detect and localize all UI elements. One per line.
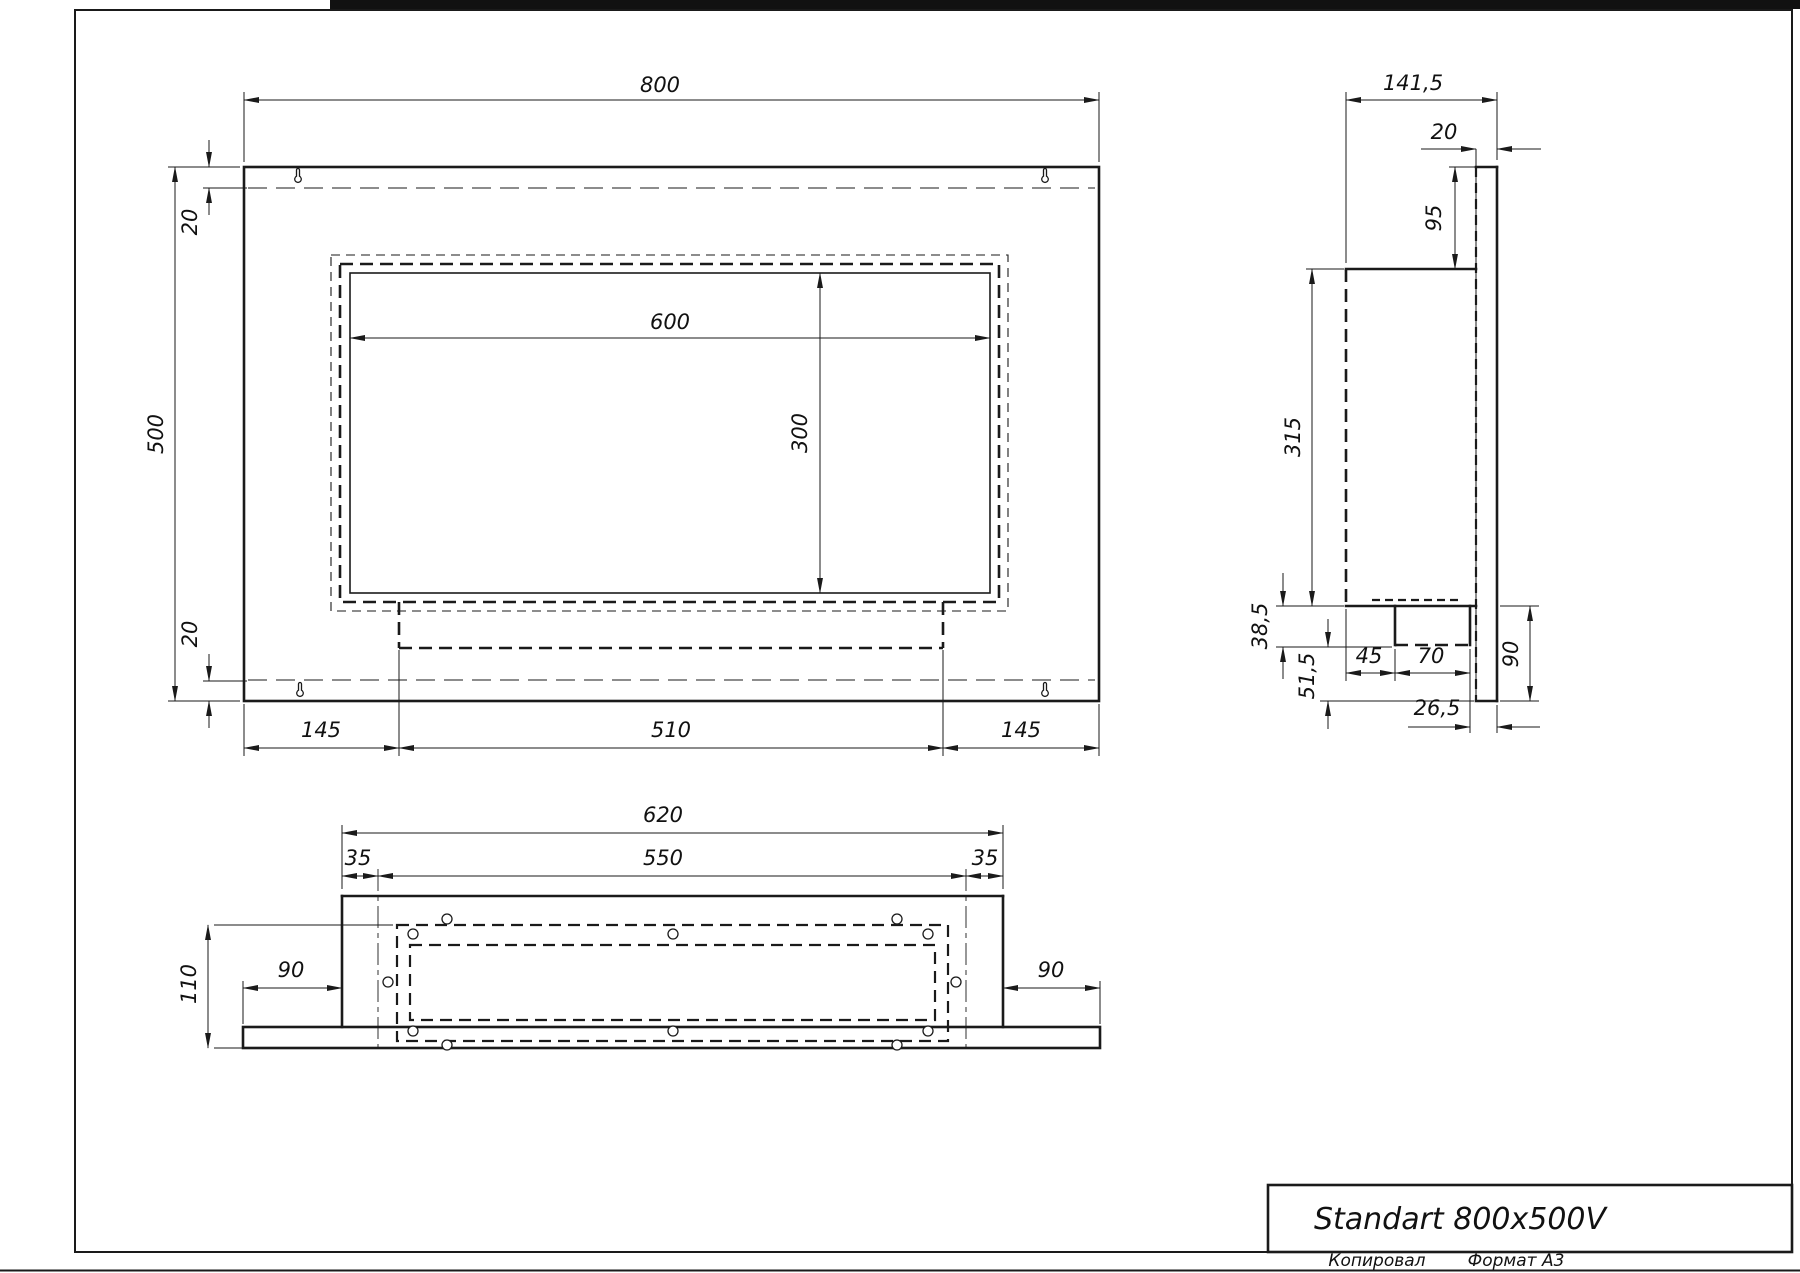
drawing-title: Standart 800x500V xyxy=(1314,1202,1609,1237)
bottom-dimensions: 620 35 550 35 110 90 90 xyxy=(177,803,1100,1048)
side-view: 141,5 20 95 315 38,5 51,5 45 xyxy=(1248,71,1541,733)
dim-label: 550 xyxy=(643,846,683,870)
dim-label: 90 xyxy=(278,958,305,982)
wall-plate xyxy=(1476,167,1497,701)
bottom-view: 620 35 550 35 110 90 90 xyxy=(177,803,1100,1051)
bottom-hidden-frame-inner xyxy=(410,945,935,1020)
dim-label: 600 xyxy=(650,310,690,334)
bottom-hidden-frame-outer xyxy=(397,925,948,1041)
front-view: 800 500 20 20 600 300 145 xyxy=(144,73,1099,756)
dim-label: 95 xyxy=(1422,205,1446,232)
dim-label: 620 xyxy=(643,803,683,827)
front-dimensions: 800 500 20 20 600 300 145 xyxy=(144,73,1099,756)
dim-label: 500 xyxy=(144,414,168,454)
dim-label: 141,5 xyxy=(1383,71,1443,95)
dim-label: 38,5 xyxy=(1248,603,1272,650)
keyhole-mount-icon xyxy=(1042,683,1049,697)
dim-label: 45 xyxy=(1356,644,1383,668)
dim-label: 26,5 xyxy=(1414,696,1461,720)
dim-label: 20 xyxy=(178,621,202,648)
title-block: Standart 800x500V Копировал Формат А3 xyxy=(1268,1185,1792,1271)
dim-label: 800 xyxy=(640,73,680,97)
dim-label: 315 xyxy=(1281,417,1305,457)
dim-label: 90 xyxy=(1499,641,1523,668)
dim-label: 300 xyxy=(788,413,812,453)
keyhole-mount-icon xyxy=(295,169,302,183)
opening-flange-frame xyxy=(331,255,1008,611)
bottom-body xyxy=(342,896,1003,1027)
dim-label: 510 xyxy=(651,718,691,742)
dim-label: 51,5 xyxy=(1295,653,1319,700)
burner-tray-hidden xyxy=(399,602,943,648)
dim-label: 35 xyxy=(345,846,372,870)
dim-label: 145 xyxy=(1001,718,1041,742)
screw-holes xyxy=(383,914,961,1050)
copied-label: Копировал xyxy=(1328,1251,1425,1271)
keyhole-mount-icon xyxy=(297,683,304,697)
format-label: Формат А3 xyxy=(1468,1251,1565,1271)
dim-label: 70 xyxy=(1418,644,1445,668)
dim-label: 35 xyxy=(972,846,999,870)
side-tray xyxy=(1395,606,1470,645)
dim-label: 145 xyxy=(301,718,341,742)
dim-label: 20 xyxy=(178,209,202,236)
scan-edge-bar xyxy=(330,0,1800,9)
dim-label: 90 xyxy=(1038,958,1065,982)
keyhole-mount-icon xyxy=(1042,169,1049,183)
side-body xyxy=(1346,149,1476,701)
drawing-sheet: 800 500 20 20 600 300 145 xyxy=(0,0,1800,1273)
dim-label: 110 xyxy=(177,964,201,1004)
technical-drawing: 800 500 20 20 600 300 145 xyxy=(0,0,1800,1273)
front-outline xyxy=(244,167,1099,701)
dim-label: 20 xyxy=(1431,120,1458,144)
